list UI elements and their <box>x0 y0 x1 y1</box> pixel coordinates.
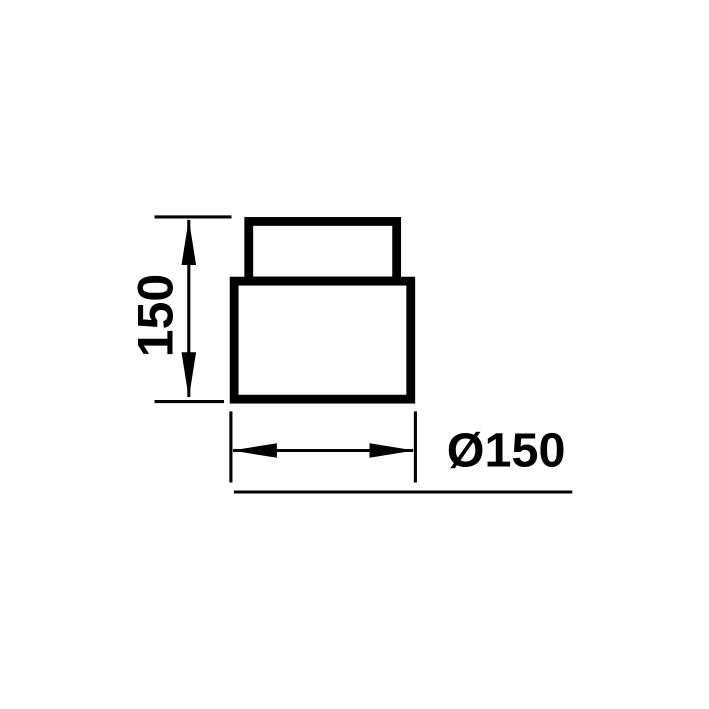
svg-text:Ø150: Ø150 <box>447 424 566 478</box>
svg-text:150: 150 <box>128 274 184 357</box>
